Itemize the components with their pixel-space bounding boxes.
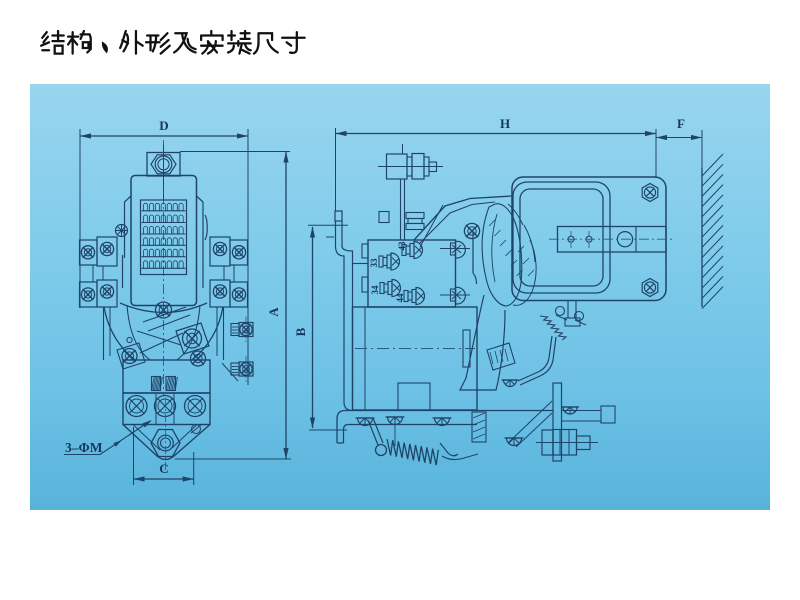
svg-text:3–ΦM: 3–ΦM <box>65 440 103 455</box>
svg-text:44: 44 <box>395 293 405 303</box>
svg-text:43: 43 <box>397 241 407 251</box>
svg-text:B: B <box>293 327 308 336</box>
svg-text:33: 33 <box>369 258 379 268</box>
svg-text:A: A <box>266 307 281 317</box>
svg-text:H: H <box>500 116 510 131</box>
svg-text:34: 34 <box>370 285 380 295</box>
svg-text:F: F <box>677 116 685 131</box>
svg-text:C: C <box>159 461 168 476</box>
svg-text:D: D <box>159 118 168 133</box>
